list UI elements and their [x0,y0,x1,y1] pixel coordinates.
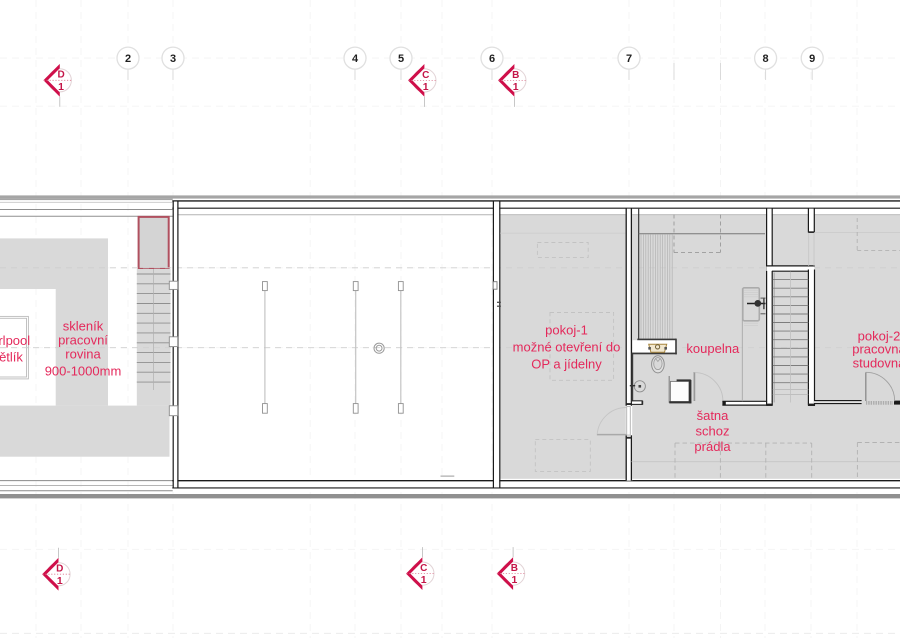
svg-text:1: 1 [421,574,427,586]
svg-text:rovina: rovina [65,347,101,362]
svg-text:7: 7 [626,53,632,65]
svg-text:D: D [57,70,64,81]
svg-text:OP a jídelny: OP a jídelny [531,356,602,371]
svg-text:900-1000mm: 900-1000mm [45,364,122,379]
svg-text:5: 5 [398,53,404,65]
svg-text:1: 1 [58,81,64,93]
svg-text:4: 4 [352,53,359,65]
svg-text:B: B [511,563,518,574]
svg-text:D: D [56,564,63,575]
svg-text:pracovní: pracovní [58,333,108,348]
svg-text:pracovna: pracovna [852,341,900,356]
svg-text:9: 9 [809,53,815,65]
svg-text:schoz: schoz [696,423,730,438]
svg-text:pokoj-1: pokoj-1 [545,322,588,337]
svg-text:C: C [422,70,429,81]
svg-text:3: 3 [170,53,176,65]
svg-text:1: 1 [513,81,519,93]
svg-text:8: 8 [763,53,769,65]
svg-text:koupelna: koupelna [686,341,740,356]
svg-text:studovna: studovna [853,355,900,370]
svg-text:2: 2 [125,53,131,65]
svg-text:C: C [420,563,427,574]
svg-text:whirlpool: whirlpool [0,333,30,348]
svg-text:skleník: skleník [63,319,104,334]
svg-text:světlík: světlík [0,350,23,365]
svg-text:1: 1 [57,575,63,587]
svg-text:šatna: šatna [697,408,730,423]
svg-text:1: 1 [423,81,429,93]
svg-text:6: 6 [489,53,495,65]
svg-text:prádla: prádla [694,439,731,454]
svg-text:B: B [512,70,519,81]
svg-text:1: 1 [511,574,517,586]
svg-text:možné otevření do: možné otevření do [513,339,621,354]
